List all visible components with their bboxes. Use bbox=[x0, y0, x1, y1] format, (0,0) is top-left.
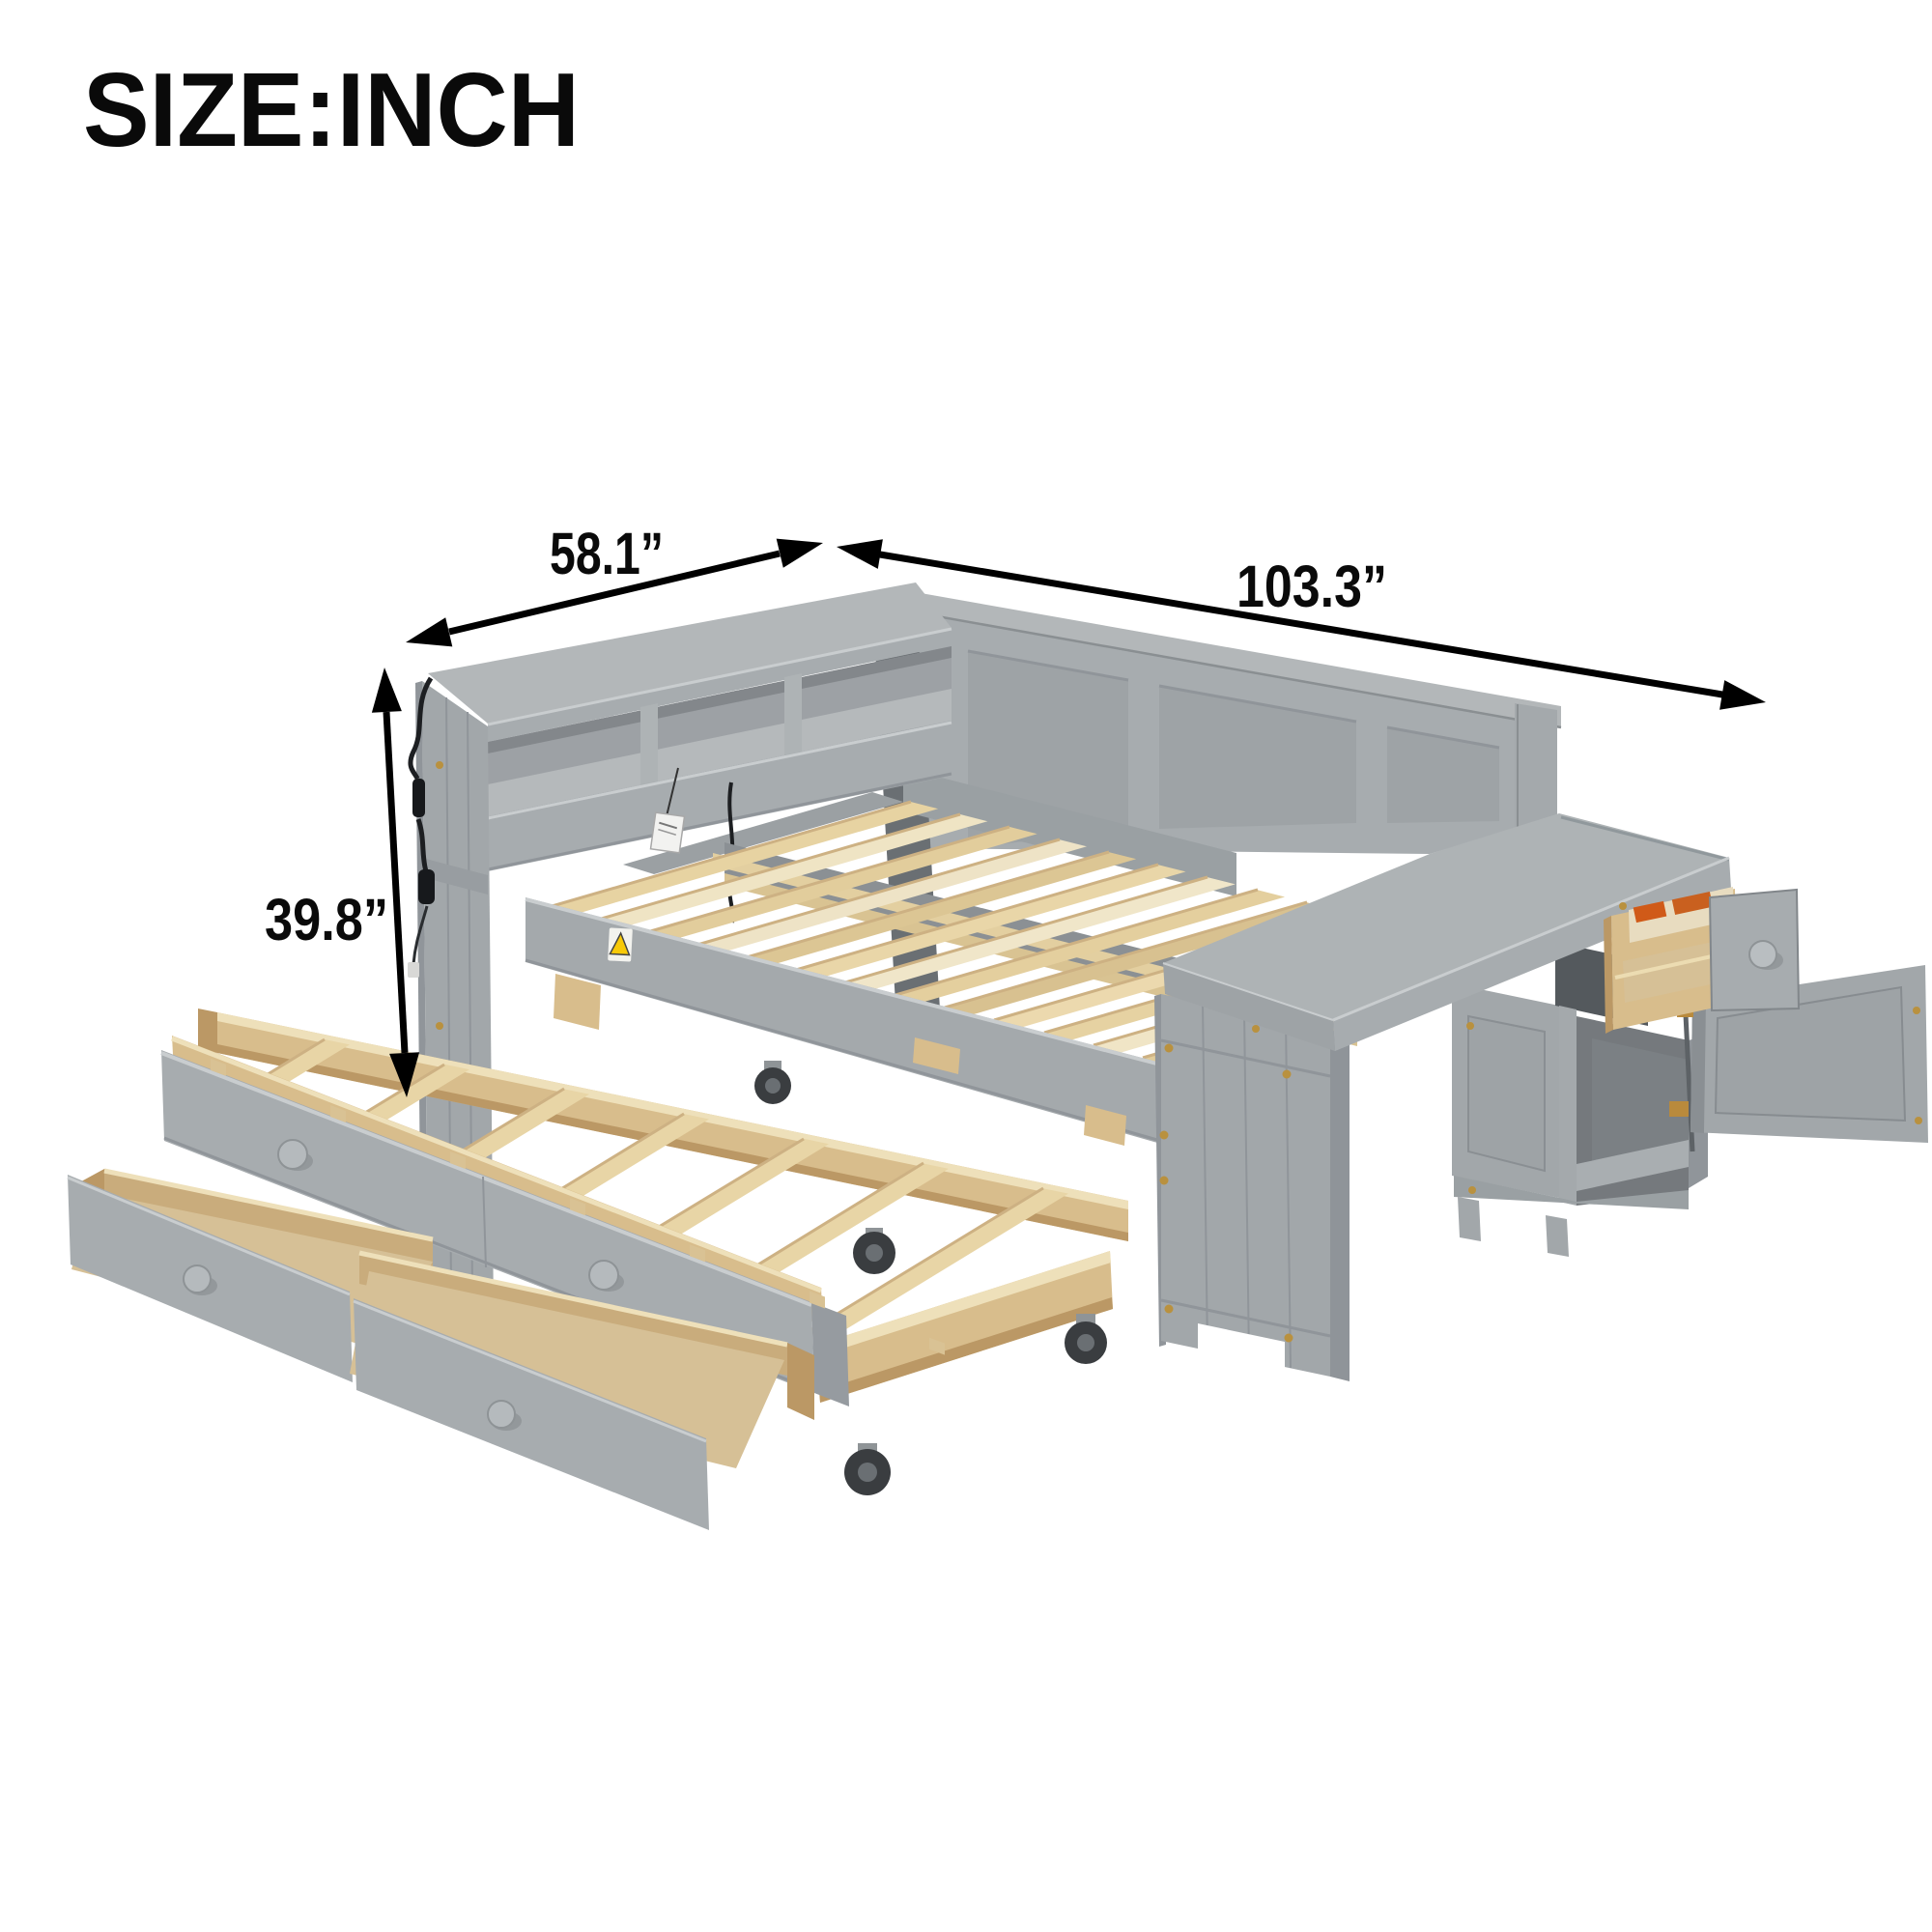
svg-text:39.8”: 39.8” bbox=[265, 887, 388, 952]
svg-text:103.3”: 103.3” bbox=[1236, 554, 1387, 619]
svg-text:58.1”: 58.1” bbox=[550, 521, 664, 586]
svg-text:SIZE:INCH: SIZE:INCH bbox=[83, 51, 580, 169]
